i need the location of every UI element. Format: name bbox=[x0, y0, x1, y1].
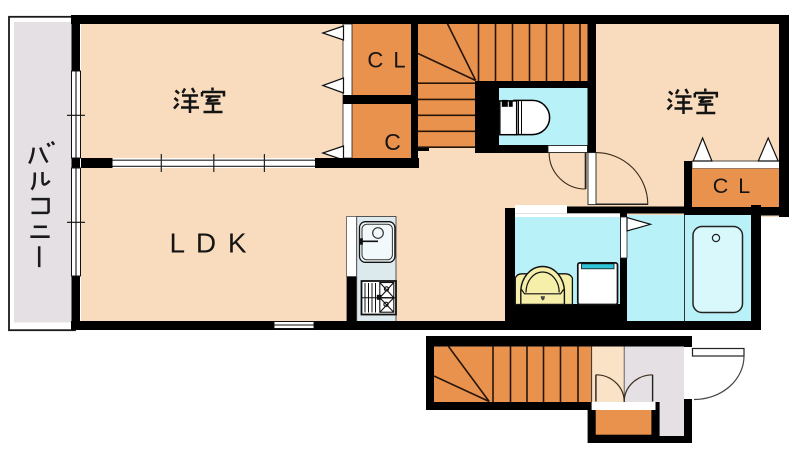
svg-text:L D K: L D K bbox=[170, 228, 249, 259]
svg-text:C L: C L bbox=[713, 174, 752, 198]
svg-text:C L: C L bbox=[367, 48, 407, 73]
svg-text:C: C bbox=[384, 129, 401, 155]
